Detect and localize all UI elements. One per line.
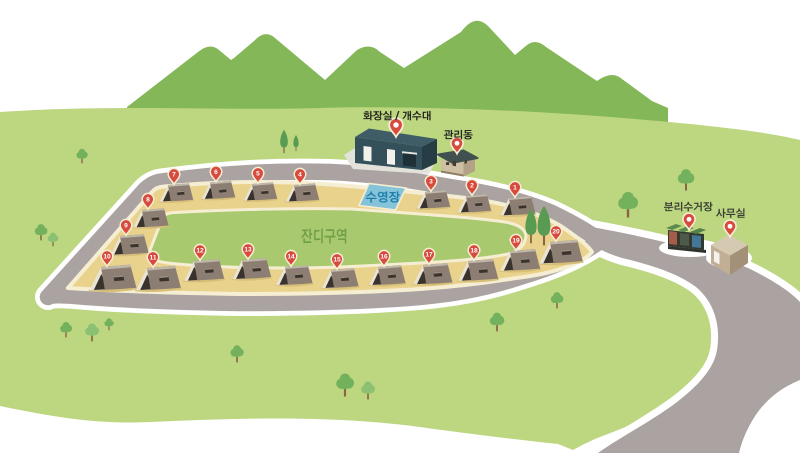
svg-text:10: 10 — [103, 254, 111, 261]
svg-text:9: 9 — [124, 223, 128, 230]
svg-text:12: 12 — [196, 248, 204, 255]
svg-text:7: 7 — [172, 172, 176, 179]
svg-text:16: 16 — [380, 254, 388, 261]
svg-text:11: 11 — [150, 255, 157, 262]
svg-text:13: 13 — [244, 247, 252, 254]
svg-text:2: 2 — [470, 183, 474, 190]
svg-text:6: 6 — [214, 169, 218, 176]
svg-text:14: 14 — [287, 254, 295, 261]
svg-text:5: 5 — [256, 171, 260, 178]
svg-text:17: 17 — [425, 252, 433, 259]
svg-text:1: 1 — [513, 185, 517, 192]
svg-text:18: 18 — [470, 248, 478, 255]
svg-text:4: 4 — [298, 172, 302, 179]
svg-text:19: 19 — [512, 238, 520, 245]
svg-text:15: 15 — [333, 257, 341, 264]
svg-text:8: 8 — [146, 197, 150, 204]
svg-text:3: 3 — [429, 179, 433, 186]
svg-text:20: 20 — [552, 229, 560, 236]
